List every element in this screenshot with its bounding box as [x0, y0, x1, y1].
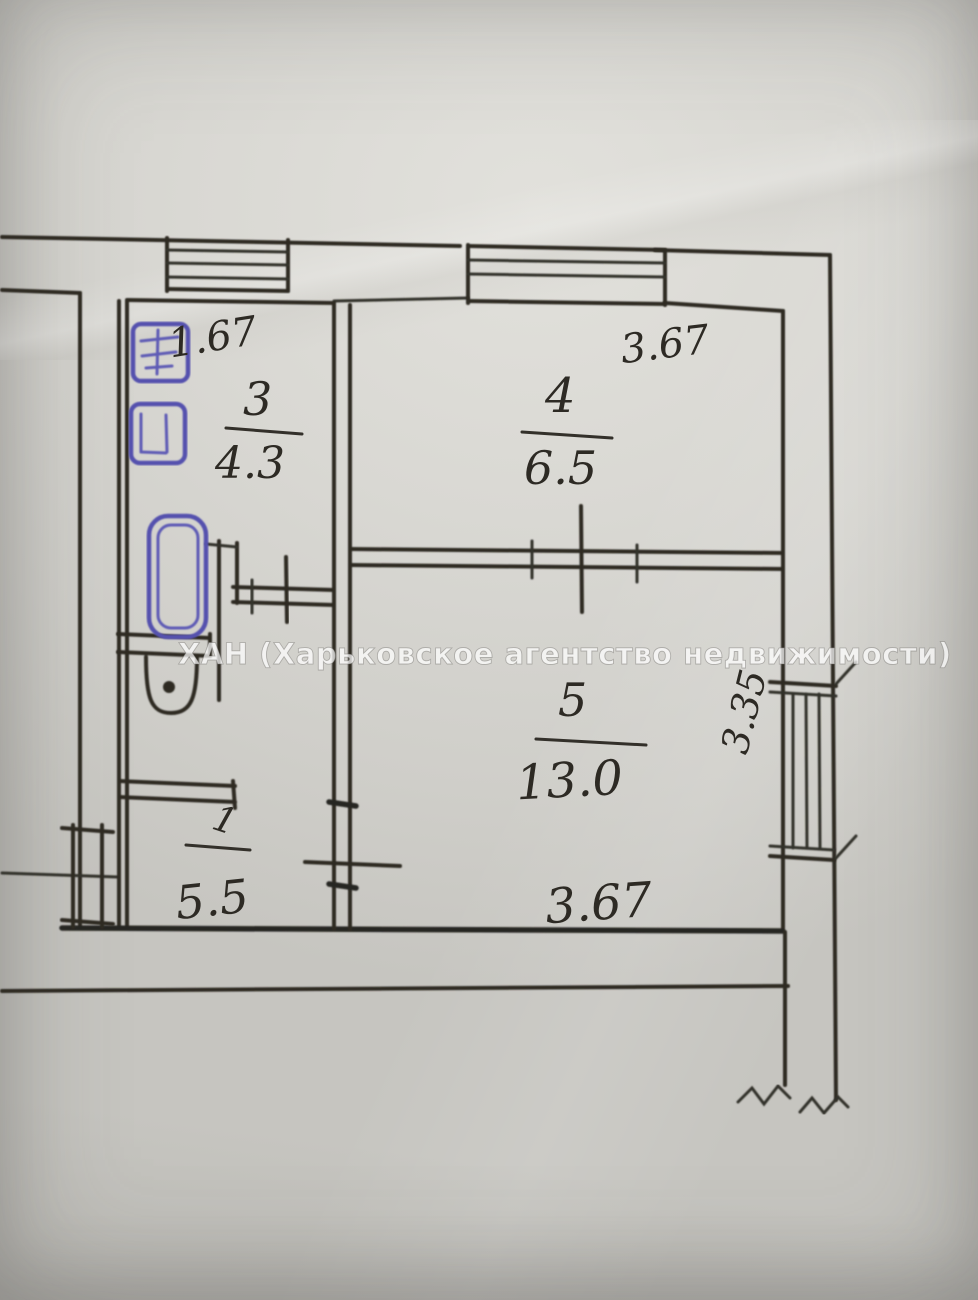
- wall-break-marks: [738, 1086, 848, 1113]
- wall-left-outer-stub: [2, 290, 80, 293]
- wall-room3-bath-a: [233, 587, 334, 590]
- window-pane-line: [770, 692, 836, 696]
- room-area: 6.5: [524, 441, 597, 495]
- room-number: 3: [243, 372, 272, 426]
- floorplan-drawing: 1.67 3 4.3 3.67 4 6.5 5 13.0 3.35 3.67 1…: [0, 0, 978, 1300]
- bathtub-symbol: [149, 516, 206, 637]
- wall-right-outer: [830, 255, 836, 1100]
- window-sill: [167, 289, 288, 291]
- window-pane-line: [468, 260, 665, 263]
- dimension-label: 3.67: [618, 317, 713, 374]
- window-pane-line: [167, 250, 288, 252]
- sink-symbol: [131, 404, 185, 463]
- wall-top-outer-left: [2, 237, 460, 246]
- window-pane-line: [819, 694, 820, 848]
- door-jamb: [62, 828, 113, 832]
- dimension-label: 3.67: [543, 872, 654, 935]
- room-area: 5.5: [173, 869, 251, 930]
- sink-bowl: [141, 414, 167, 453]
- door-opening-icon: [305, 862, 400, 866]
- fraction-bar: [536, 739, 646, 745]
- door-hall-room5: [305, 802, 400, 888]
- room-number: 1: [207, 798, 241, 844]
- window-pane-line: [167, 277, 288, 279]
- door-jamb: [62, 920, 113, 924]
- wall-room3-top-inner: [127, 300, 334, 303]
- wall-room3-bath-b: [233, 602, 334, 605]
- fraction-bar: [226, 428, 302, 434]
- fraction-bar: [522, 432, 612, 438]
- agency-watermark: ХАН (Харьковское агентство недвижимости): [178, 637, 952, 671]
- labels: 1.67 3 4.3 3.67 4 6.5 5 13.0 3.35 3.67 1…: [165, 308, 775, 935]
- window-pane-line: [770, 846, 834, 850]
- wall-break-icon: [738, 1086, 790, 1104]
- window-pane-line: [167, 263, 288, 265]
- window-pane-line: [468, 246, 665, 250]
- room-number: 5: [558, 673, 587, 727]
- wall-bath-hall-a: [119, 781, 235, 786]
- window-sill: [770, 856, 834, 860]
- toilet-drain: [163, 681, 175, 693]
- wall-top-outer-right: [655, 250, 830, 255]
- room-area: 4.3: [214, 438, 285, 489]
- window-room3: [167, 238, 288, 291]
- window-pane-line: [468, 274, 665, 277]
- wall-room4-5-a: [350, 549, 783, 553]
- window-room4: [468, 245, 665, 305]
- door-room4-room5: [532, 506, 637, 612]
- door-opening-icon: [286, 557, 287, 622]
- dimension-label: 3.35: [712, 665, 775, 758]
- wall-room4-5-b: [350, 565, 783, 569]
- window-sill: [468, 301, 665, 304]
- wall-top-step: [334, 298, 468, 301]
- wall-bottom-inner: [62, 928, 783, 931]
- floorplan-photo: 1.67 3 4.3 3.67 4 6.5 5 13.0 3.35 3.67 1…: [0, 0, 978, 1300]
- window-pane-line: [806, 694, 807, 848]
- window-sill: [770, 682, 836, 686]
- room-number: 4: [544, 368, 576, 424]
- wall-bath-stub-cap: [206, 544, 237, 547]
- wall-bottom-outer: [2, 986, 788, 991]
- window-flick: [836, 836, 856, 858]
- door-opening-icon: [581, 506, 582, 612]
- room-area: 13.0: [515, 750, 625, 812]
- dimension-label: 1.67: [165, 308, 261, 367]
- bathtub-inner: [158, 525, 198, 628]
- wall-room4-top-inner: [665, 303, 783, 311]
- fraction-bar: [186, 845, 250, 850]
- wall-break-icon: [800, 1097, 848, 1113]
- wall-bath-hall-b: [119, 797, 235, 802]
